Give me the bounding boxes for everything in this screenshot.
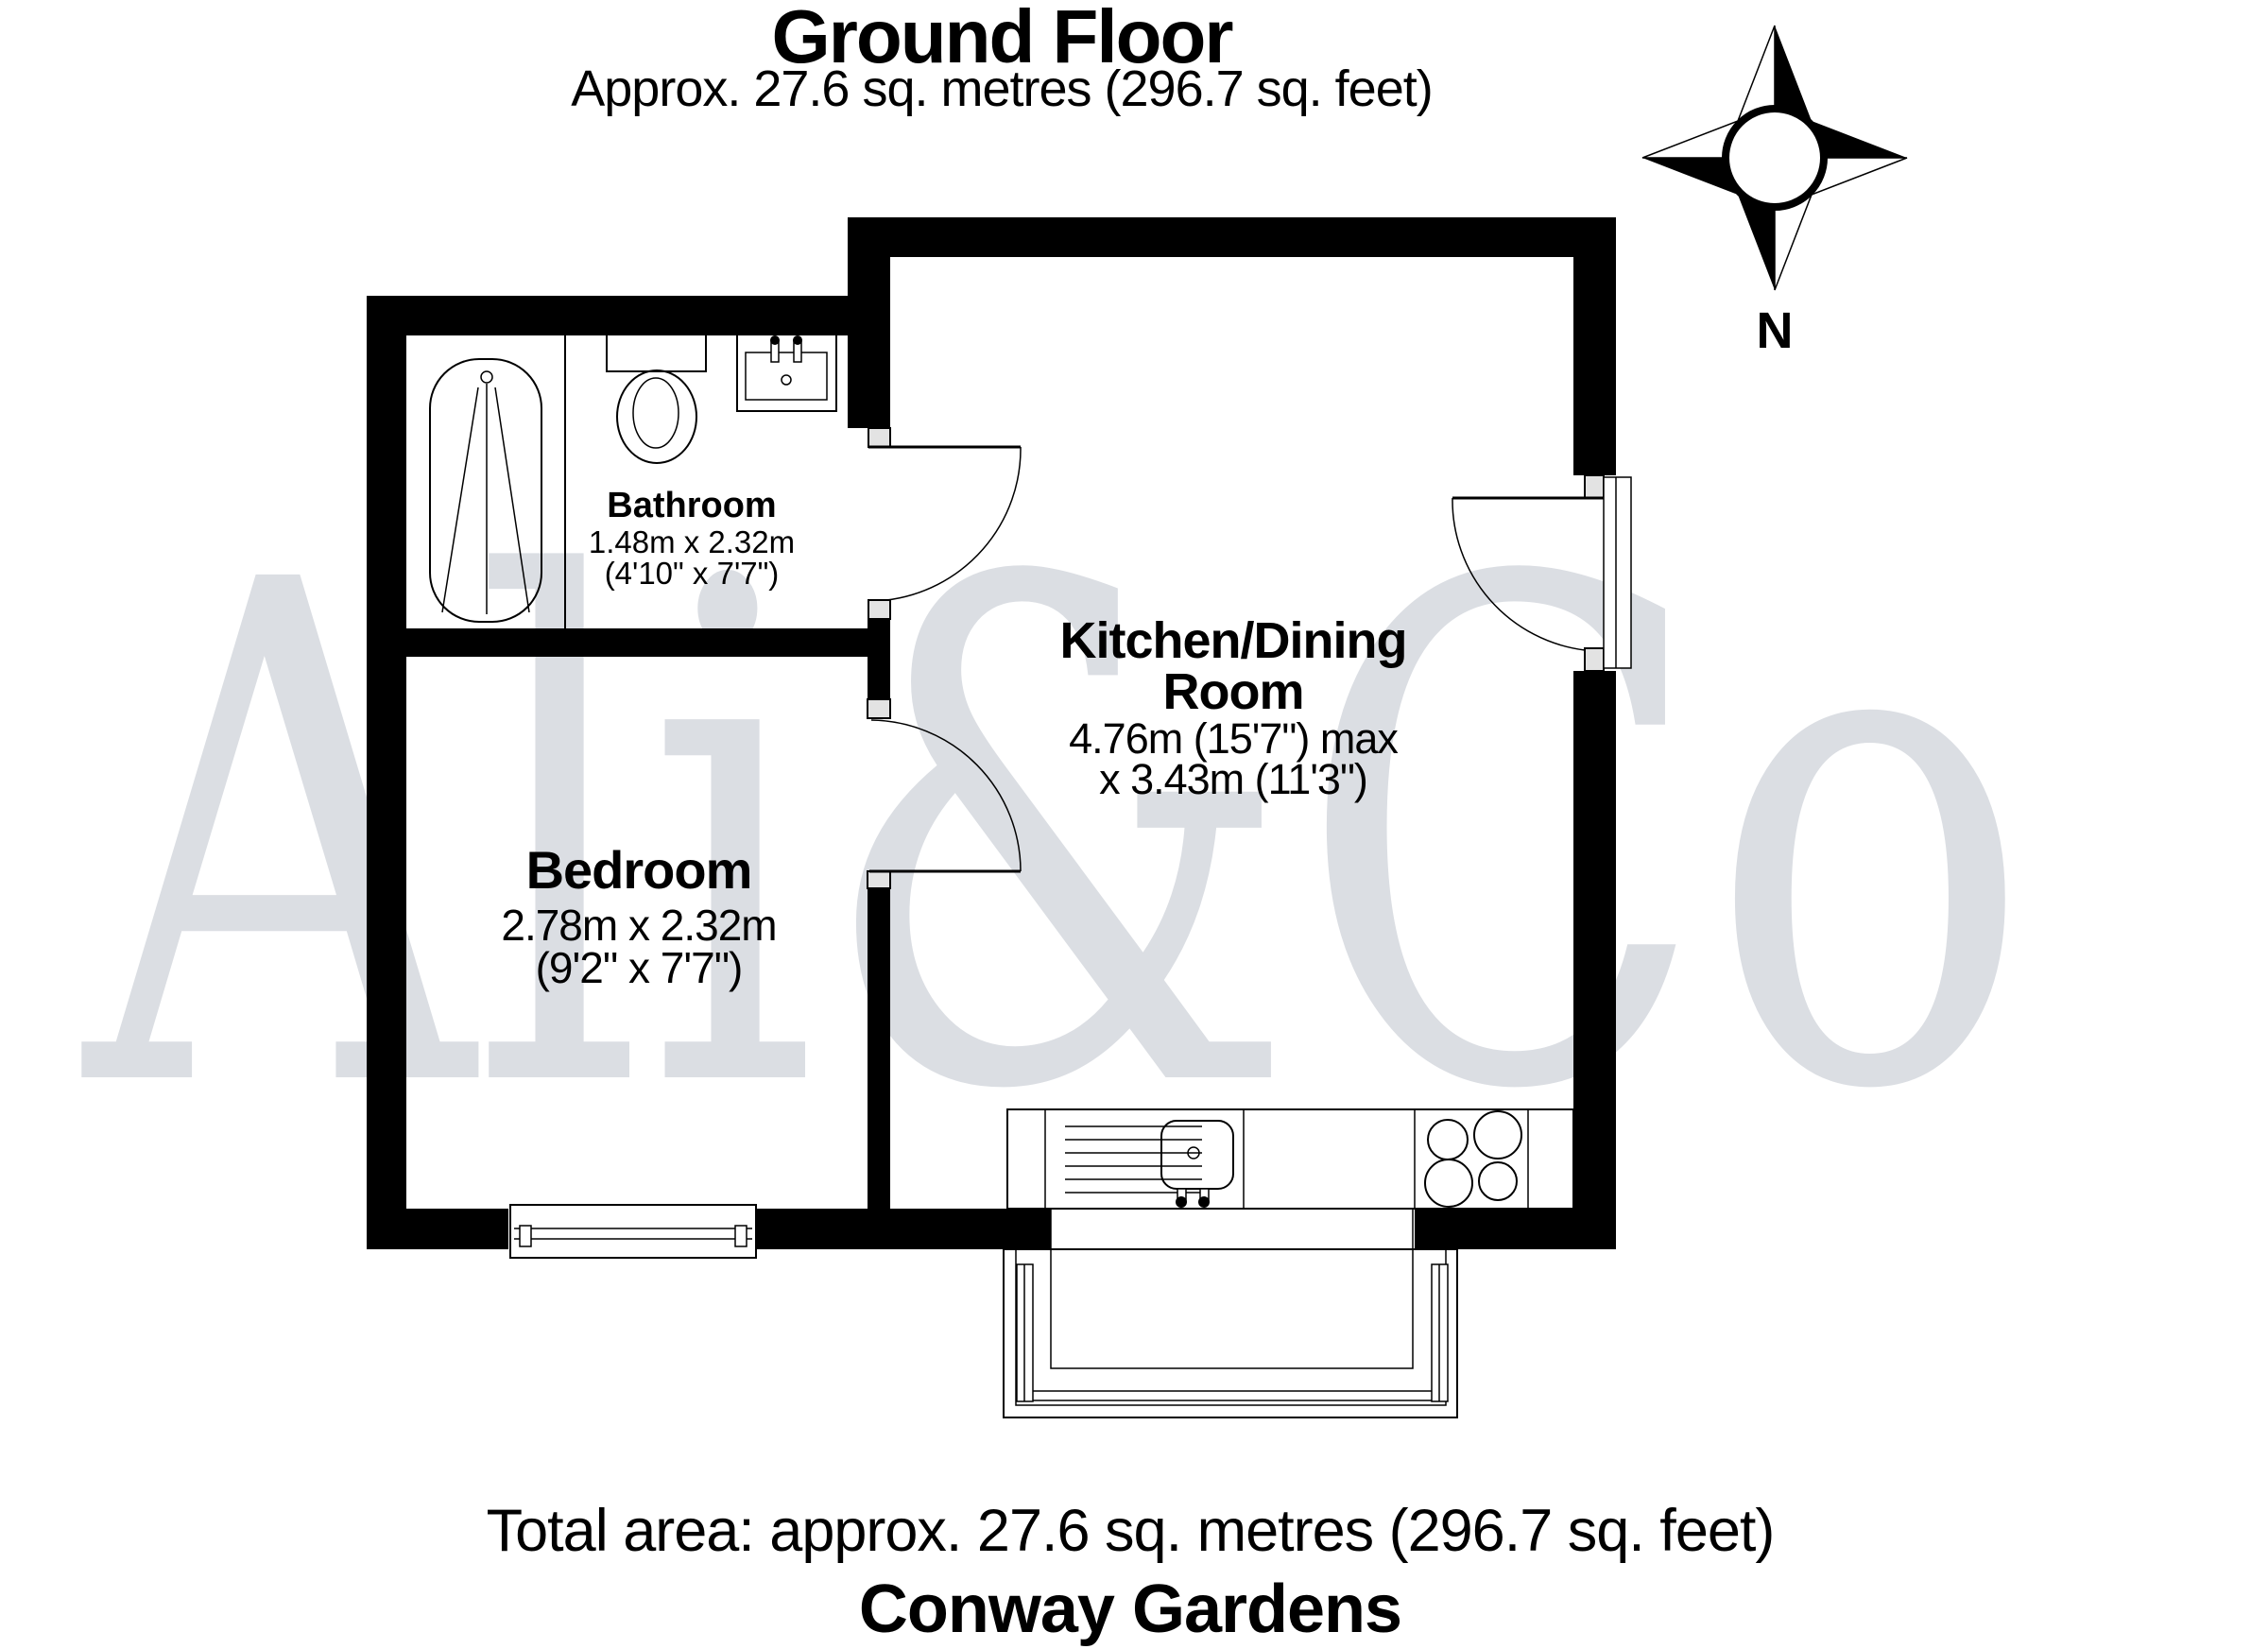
compass-north-label: N xyxy=(1757,302,1794,359)
bathroom-dims-metric: 1.48m x 2.32m xyxy=(589,524,795,559)
basin-icon xyxy=(737,335,836,411)
bathroom-label: Bathroom xyxy=(607,486,776,525)
wall-right-lower xyxy=(1573,671,1616,1249)
bathroom-door-jamb-top xyxy=(868,428,890,447)
bedroom-label: Bedroom xyxy=(526,840,752,900)
wall-bathroom-bedroom-divider xyxy=(406,628,869,657)
wall-kitchen-top xyxy=(848,217,1616,257)
wall-bathroom-top xyxy=(367,296,869,335)
entrance-door-jamb-bottom xyxy=(1585,648,1604,671)
entrance-door-lining xyxy=(1604,477,1631,668)
entrance-door-jamb-top xyxy=(1585,475,1604,498)
bedroom-door-jamb-top xyxy=(868,699,890,718)
floorplan-canvas: Ali&Co xyxy=(0,0,2268,1649)
wall-left xyxy=(367,296,406,1249)
kitchen-label-line1: Kitchen/Dining xyxy=(1060,612,1407,669)
wall-right-upper xyxy=(1573,217,1616,475)
property-name: Conway Gardens xyxy=(859,1572,1401,1647)
page-subtitle: Approx. 27.6 sq. metres (296.7 sq. feet) xyxy=(571,60,1433,117)
bathroom-door-jamb-bottom xyxy=(868,600,890,619)
wall-bedroom-kitchen xyxy=(868,888,890,1209)
bathroom-dims-imperial: (4'10" x 7'7") xyxy=(605,556,780,591)
kitchen-counter xyxy=(1007,1109,1573,1209)
floorplan-page: Ali&Co xyxy=(0,0,2268,1649)
worktop xyxy=(1007,1109,1573,1209)
compass-rose: N xyxy=(1642,26,1907,359)
bedroom-door-jamb-bottom xyxy=(868,871,890,888)
bedroom-window xyxy=(510,1205,756,1258)
kitchen-dims-line2: x 3.43m (11'3") xyxy=(1099,755,1367,803)
kitchen-label-line2: Room xyxy=(1163,663,1304,720)
wall-between-doors xyxy=(868,619,890,699)
wall-bottom-left xyxy=(367,1209,508,1249)
total-area-text: Total area: approx. 27.6 sq. metres (296… xyxy=(487,1498,1775,1564)
compass-circle xyxy=(1726,109,1824,207)
wall-bottom-mid xyxy=(756,1209,1051,1249)
bedroom-dims-imperial: (9'2" x 7'7") xyxy=(536,943,743,992)
